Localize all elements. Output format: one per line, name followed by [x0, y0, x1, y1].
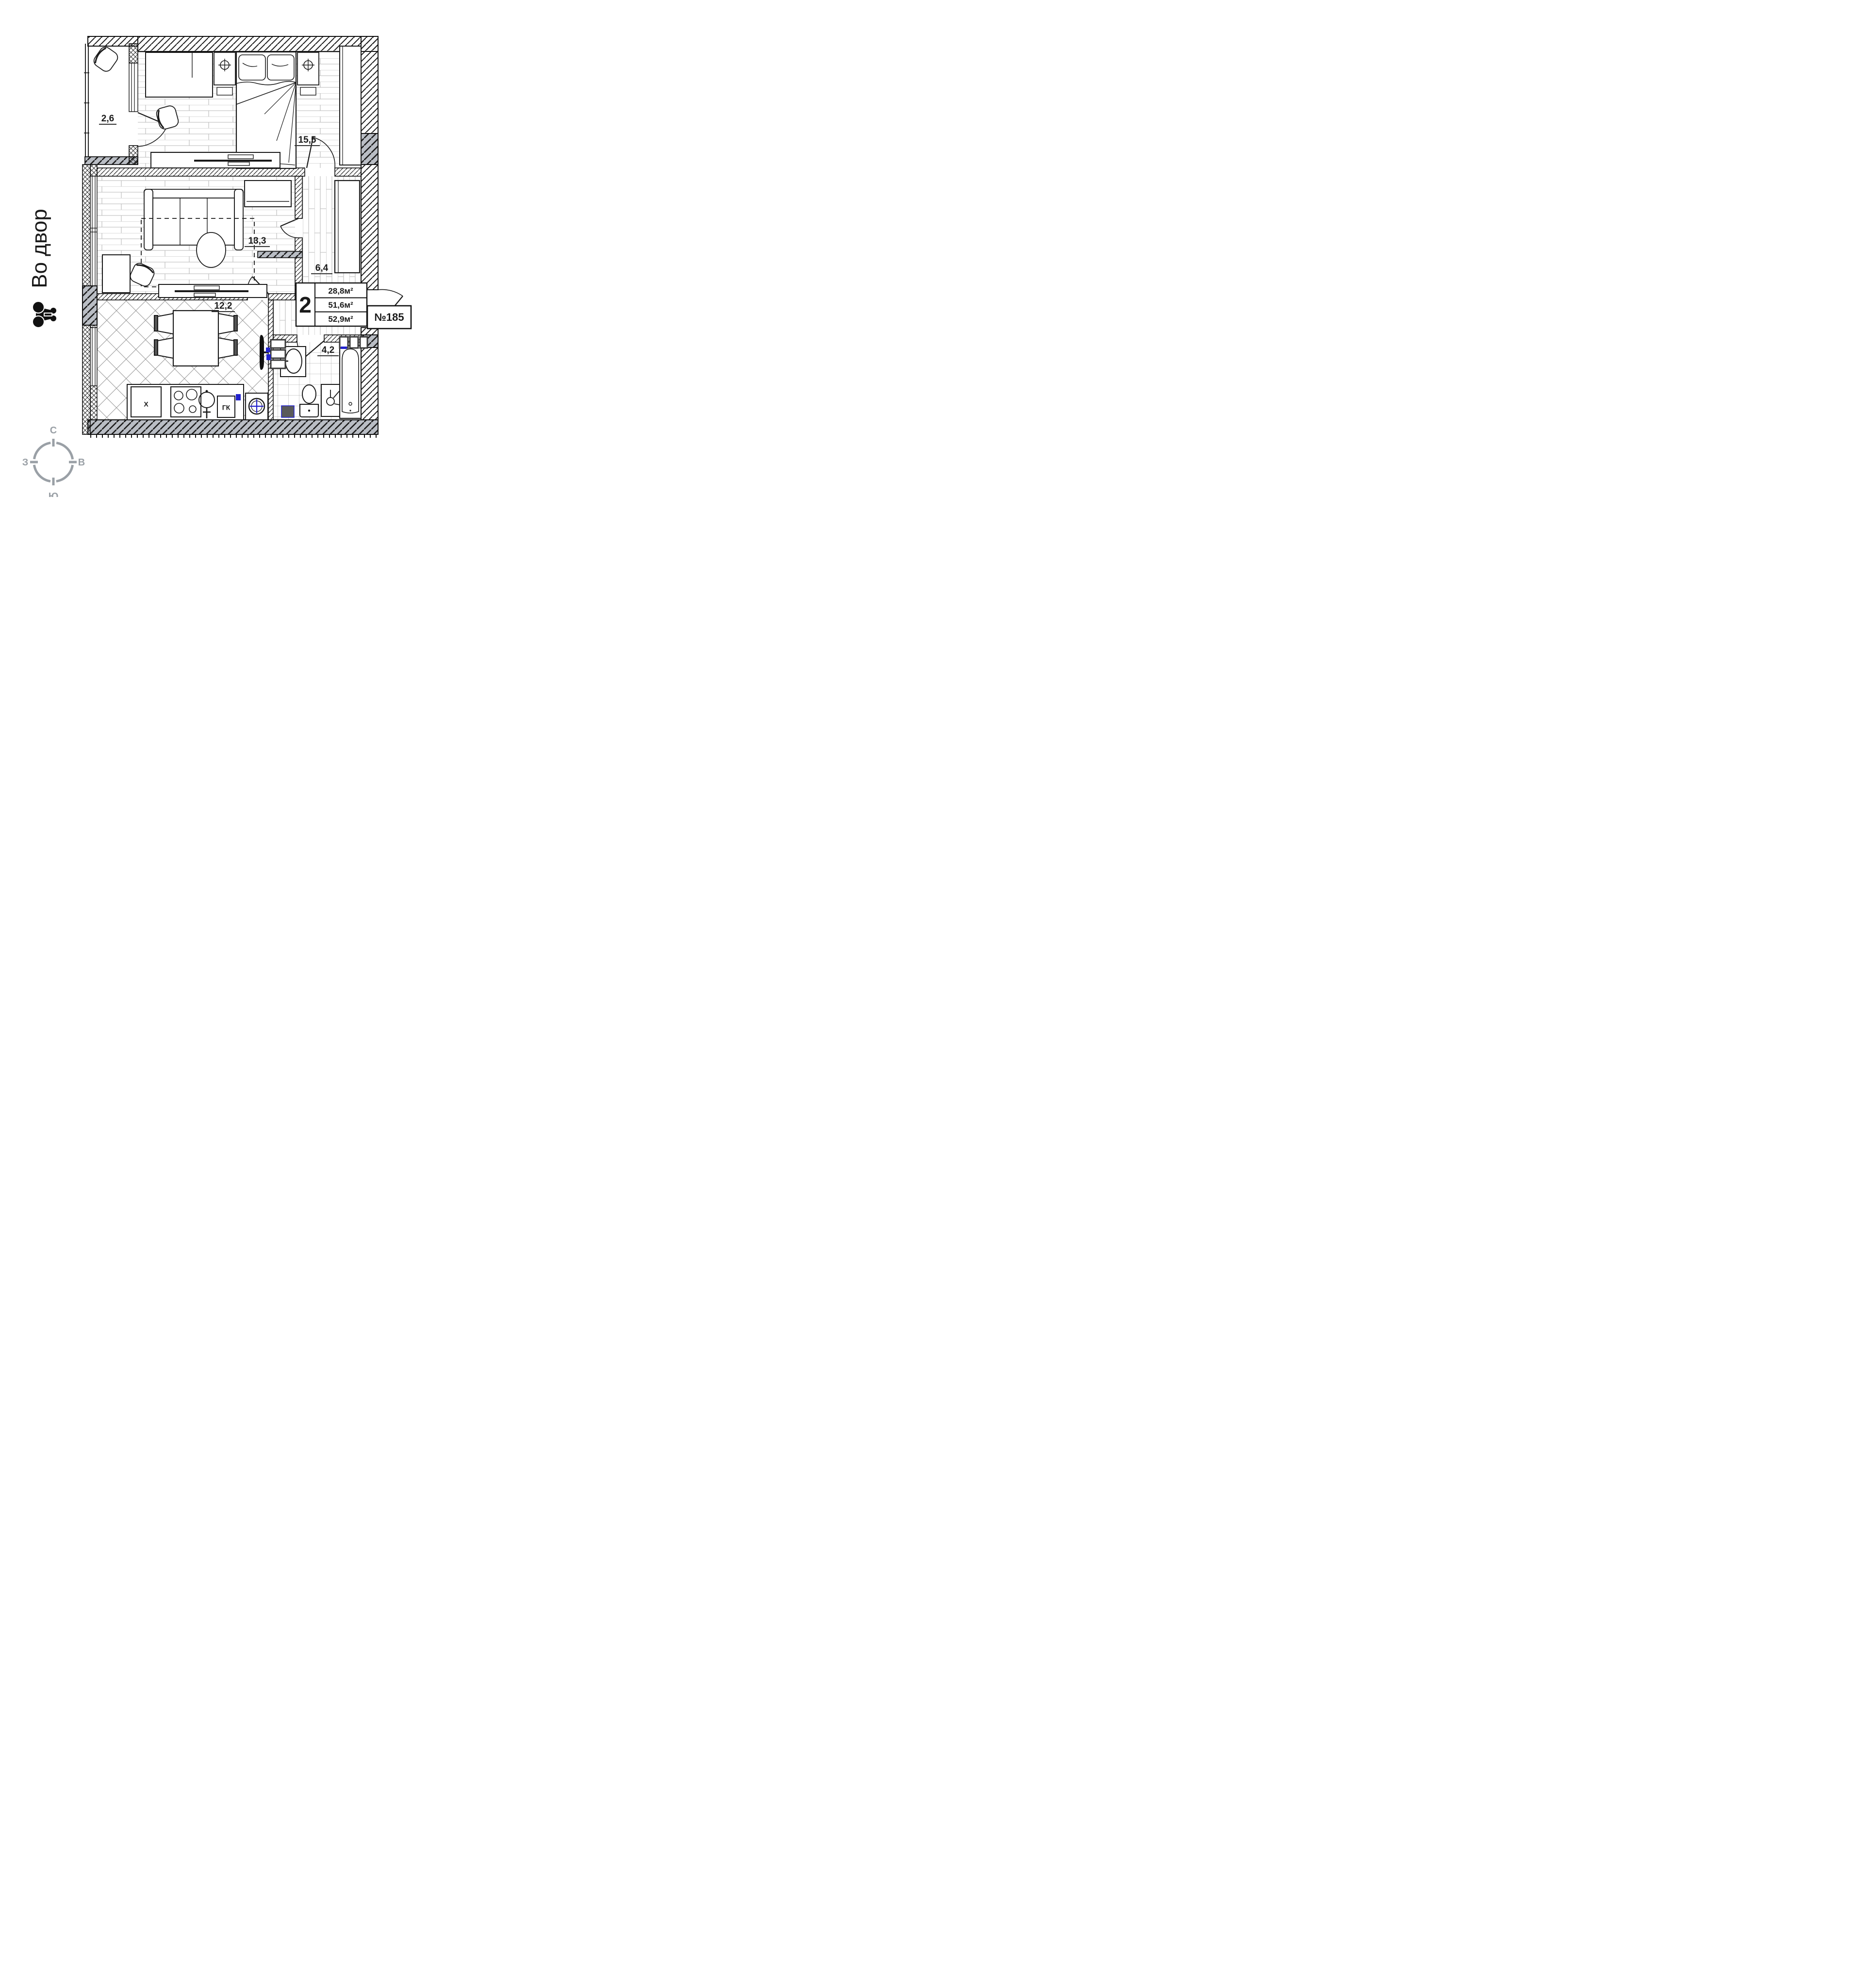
plumbing-marker	[236, 394, 241, 400]
living-tv-stand	[159, 284, 267, 298]
floorplan-page: X ГК	[0, 0, 466, 497]
double-bed	[236, 52, 296, 168]
bathroom-area-label: 4,2	[322, 345, 334, 355]
fridge: X	[131, 387, 161, 417]
apartment-number: №185	[374, 311, 404, 323]
bedroom-wardrobe	[340, 46, 361, 165]
living-desk	[102, 255, 130, 293]
living-area-label: 13,3	[248, 236, 266, 246]
total-area-value: 52,9м²	[328, 315, 353, 324]
gas-boiler-label: ГК	[222, 404, 231, 412]
sofa	[144, 189, 243, 250]
living-shelf	[245, 181, 291, 207]
floor-drain	[281, 406, 294, 417]
bedroom-dresser-tv	[151, 152, 280, 168]
hallway-wardrobe	[335, 181, 360, 273]
hallway-area-label: 6,4	[315, 263, 329, 273]
balcony-chair	[92, 45, 120, 74]
nightstand-left	[214, 52, 235, 95]
apartment-area-value: 51,6м²	[328, 300, 353, 310]
vent-shaft-block	[361, 133, 378, 165]
living-area-value: 28,8м²	[328, 286, 353, 296]
kitchen-window	[90, 328, 97, 386]
bedroom-area-label: 15,5	[298, 135, 316, 145]
living-room-window	[90, 176, 97, 286]
coffee-table	[197, 232, 226, 267]
bedroom-desk	[146, 52, 213, 97]
rooms-count: 2	[299, 292, 312, 317]
compass-south: Ю	[49, 491, 59, 497]
compass-rose: С Ю З В	[22, 425, 85, 497]
bathroom-shelves-top	[340, 337, 367, 349]
binoculars-icon	[33, 301, 56, 328]
bathtub	[340, 346, 361, 418]
compass-west: З	[22, 457, 29, 468]
apartment-number-box: №185	[367, 306, 411, 329]
left-wall-gray-block	[82, 286, 97, 325]
nightstand-right	[297, 52, 319, 95]
gas-boiler: ГК	[217, 396, 235, 417]
courtyard-label: Во двор	[28, 209, 51, 288]
fridge-label: X	[144, 400, 148, 408]
apartment-info-block: 2 28,8м² 51,6м² 52,9м²	[296, 283, 367, 326]
compass-east: В	[78, 457, 85, 468]
compass-north: С	[50, 425, 57, 436]
balcony-area-label: 2,6	[101, 114, 114, 124]
kitchen-area-label: 12,2	[214, 301, 232, 311]
foundation-ticks	[91, 434, 376, 438]
dining-table	[173, 311, 218, 366]
stove	[171, 387, 201, 417]
floorplan-drawing: X ГК	[0, 0, 466, 497]
